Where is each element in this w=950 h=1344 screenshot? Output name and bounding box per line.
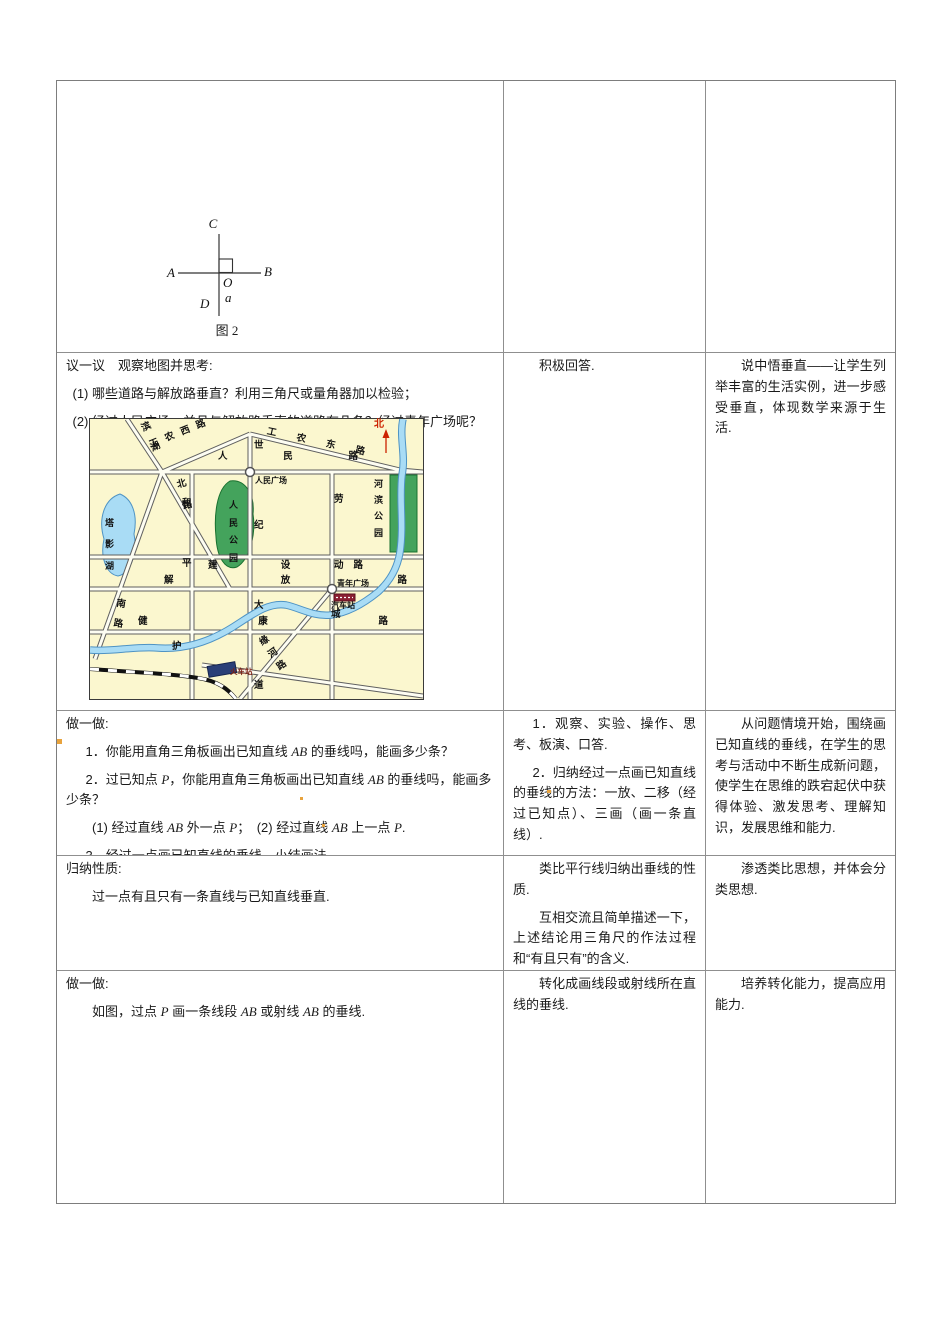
north-arrow-icon: [383, 429, 390, 453]
figure-label-B: B: [264, 264, 272, 279]
road-label-laodong-lu: 劳动: [334, 495, 344, 571]
do-it-item-3: 3．经过一点画已知直线的垂线，小结画法.: [66, 846, 494, 856]
perpendicular-figure: C A B O a D: [159, 211, 279, 331]
figure-label-C: C: [209, 216, 218, 231]
activity-note-2: 2．归纳经过一点画已知直线的垂线的方法：一放、二移（经过已知点）、三画（画一条直…: [513, 763, 696, 846]
bus-station-shape: [334, 594, 355, 601]
cell-r4-right: 渗透类比思想，并体会分类思想.: [706, 856, 895, 971]
figure-caption: 图 2: [192, 321, 262, 342]
analogy-note-1: 类比平行线归纳出垂线的性质.: [513, 859, 696, 901]
road-label-jiefang-lu: 解放路: [164, 576, 407, 586]
cell-r2-middle: 积极回答.: [504, 353, 706, 711]
cell-r4-middle: 类比平行线归纳出垂线的性质. 互相交流且简单描述一下，上述结论用三角尺的作法过程…: [504, 856, 706, 971]
taying-lake-label: 塔影湖: [105, 519, 114, 571]
do-it-item-2-sub: (1) 经过直线 AB 外一点 P； (2) 经过直线 AB 上一点 P.: [66, 818, 494, 839]
cell-discuss: 议一议 观察地图并思考: (1) 哪些道路与解放路垂直？利用三角尺或量角器加以检…: [57, 353, 504, 711]
student-activity-note: 积极回答.: [513, 356, 696, 377]
transform-note: 转化成画线段或射线所在直线的垂线.: [513, 974, 696, 1016]
peoples-park-label: 人民公园: [229, 501, 238, 563]
do-it-heading: 做一做:: [66, 714, 494, 735]
property-heading: 归纳性质:: [66, 859, 494, 880]
orange-mark: [57, 739, 62, 744]
activity-note-1: 1．观察、实验、操作、思考、板演、口答.: [513, 714, 696, 756]
riverside-park-label: 河滨公园: [374, 480, 383, 538]
river-label-cheng: 城: [331, 610, 341, 620]
cell-r5-middle: 转化成画线段或射线所在直线的垂线.: [504, 971, 706, 1203]
cell-r2-right: 说中悟垂直——让学生列举丰富的生活实例，进一步感受垂直，体现数学来源于生活.: [706, 353, 895, 711]
do-it-2-task: 如图，过点 P 画一条线段 AB 或射线 AB 的垂线.: [66, 1002, 494, 1023]
cell-r3-middle: 1．观察、实验、操作、思考、板演、口答. 2．归纳经过一点画已知直线的垂线的方法…: [504, 711, 706, 856]
lesson-plan-table: C A B O a D 图 2 议一议 观察地图并思考: (1) 哪些道路与解放…: [56, 80, 896, 1204]
design-note-r3: 从问题情境开始，围绕画已知直线的垂线，在学生的思考与活动中不断生成新问题，使学生…: [715, 714, 886, 839]
cell-r1-middle: [504, 81, 706, 353]
do-it-item-1: 1．你能用直角三角板画出已知直线 AB 的垂线吗，能画多少条？: [66, 742, 494, 763]
figure-label-A: A: [166, 265, 175, 280]
figure-label-O: O: [223, 275, 233, 290]
design-note-r4: 渗透类比思想，并体会分类思想.: [715, 859, 886, 901]
do-it-2-heading: 做一做:: [66, 974, 494, 995]
design-note-r5: 培养转化能力，提高应用能力.: [715, 974, 886, 1016]
cell-property: 归纳性质: 过一点有且只有一条直线与已知直线垂直.: [57, 856, 504, 971]
road-label-renmin-lu: 人民路: [218, 452, 358, 462]
train-station-label: 火车站: [230, 668, 253, 676]
orange-mark: [300, 797, 303, 800]
north-label: 北: [374, 420, 384, 431]
river-label-hu: 护: [172, 642, 182, 652]
youth-plaza-label: 青年广场: [337, 580, 369, 588]
cell-r5-right: 培养转化能力，提高应用能力.: [706, 971, 895, 1203]
figure-label-a: a: [225, 290, 232, 305]
design-intent-note: 说中悟垂直——让学生列举丰富的生活实例，进一步感受垂直，体现数学来源于生活.: [715, 356, 886, 439]
property-statement: 过一点有且只有一条直线与已知直线垂直.: [66, 887, 494, 908]
figure-label-D: D: [199, 296, 210, 311]
cell-r3-right: 从问题情境开始，围绕画已知直线的垂线，在学生的思考与活动中不断生成新问题，使学生…: [706, 711, 895, 856]
cell-figure: C A B O a D 图 2: [57, 81, 504, 353]
orange-mark: [322, 824, 325, 827]
peoples-plaza-label: 人民广场: [255, 477, 287, 485]
orange-mark: [547, 790, 551, 793]
cell-r1-right: [706, 81, 895, 353]
discuss-heading: 议一议 观察地图并思考:: [66, 356, 494, 377]
cell-do-it: 做一做: 1．你能用直角三角板画出已知直线 AB 的垂线吗，能画多少条？ 2．过…: [57, 711, 504, 856]
city-map: 北 人民路 建设路 解放路 健康路 世纪大道 劳动 和平 滨湖 工农西路 工农东…: [89, 418, 424, 700]
bus-station-label: 汽车站: [331, 602, 355, 610]
discuss-item-1: (1) 哪些道路与解放路垂直？利用三角尺或量角器加以检验；: [66, 384, 494, 405]
right-angle-mark: [219, 259, 233, 273]
analogy-note-2: 互相交流且简单描述一下，上述结论用三角尺的作法过程和“有且只有”的含义.: [513, 908, 696, 970]
do-it-item-2: 2．过已知点 P，你能用直角三角板画出已知直线 AB 的垂线吗，能画多少条？: [66, 770, 494, 812]
cell-do-it-2: 做一做: 如图，过点 P 画一条线段 AB 或射线 AB 的垂线.: [57, 971, 504, 1203]
